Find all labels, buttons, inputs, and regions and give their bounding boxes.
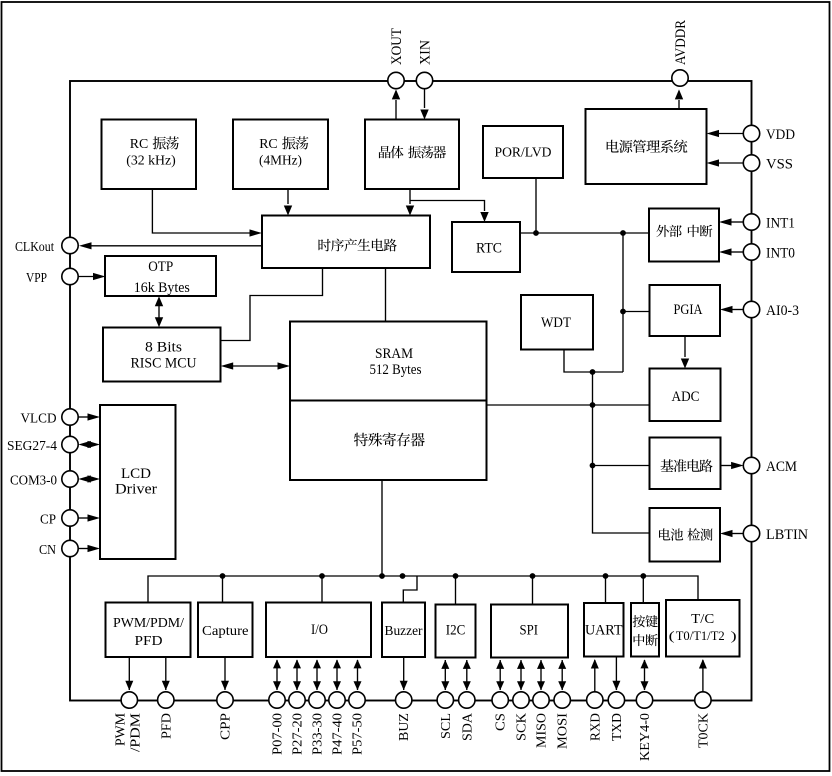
svg-text:WDT: WDT	[541, 315, 571, 331]
svg-text:Buzzer: Buzzer	[385, 624, 423, 639]
svg-text:SRAM: SRAM	[375, 346, 413, 362]
svg-text:KEY4-0: KEY4-0	[637, 713, 652, 761]
svg-text:Capture: Capture	[202, 624, 249, 639]
svg-text:MISO: MISO	[534, 713, 549, 748]
svg-text:(32 kHz): (32 kHz)	[126, 153, 176, 168]
svg-text:P57-50: P57-50	[350, 713, 365, 755]
svg-text:T0CK: T0CK	[695, 713, 710, 748]
svg-text:T0/T1/T2: T0/T1/T2	[676, 628, 725, 643]
svg-text:I2C: I2C	[446, 622, 466, 638]
svg-text:SCL: SCL	[438, 713, 453, 739]
svg-text:PGIA: PGIA	[674, 302, 703, 318]
svg-text:TXD: TXD	[609, 713, 624, 741]
svg-text:SDA: SDA	[459, 713, 474, 741]
svg-text:ACM: ACM	[766, 459, 797, 475]
svg-text:INT0: INT0	[766, 246, 795, 262]
svg-text:AI0-3: AI0-3	[766, 303, 799, 319]
svg-text:CP: CP	[40, 512, 56, 527]
svg-text:MOSI: MOSI	[555, 712, 570, 749]
svg-text:(4MHz): (4MHz)	[259, 153, 302, 168]
svg-text:VDD: VDD	[766, 127, 795, 143]
svg-text:(: (	[669, 628, 675, 643]
svg-text:P33-30: P33-30	[310, 713, 325, 755]
svg-text:/PDM: /PDM	[127, 713, 142, 752]
svg-text:AVDDR: AVDDR	[673, 20, 689, 65]
svg-text:SEG27-4: SEG27-4	[7, 439, 57, 454]
svg-text:P47-40: P47-40	[330, 713, 345, 755]
svg-text:LBTIN: LBTIN	[766, 527, 809, 543]
svg-text:P07-00: P07-00	[270, 713, 285, 755]
svg-text:LCD: LCD	[121, 466, 151, 482]
svg-text:T/C: T/C	[691, 612, 714, 627]
svg-text:SCK: SCK	[514, 713, 529, 741]
svg-text:CN: CN	[39, 543, 56, 558]
svg-text:VLCD: VLCD	[21, 411, 57, 426]
svg-text:INT1: INT1	[766, 216, 795, 232]
svg-text:PWM/PDM/: PWM/PDM/	[113, 616, 184, 631]
svg-text:RC: RC	[130, 137, 149, 152]
svg-text:8 Bits: 8 Bits	[145, 339, 182, 355]
svg-text:OTP: OTP	[148, 259, 173, 275]
svg-text:ADC: ADC	[672, 389, 700, 405]
svg-text:512 Bytes: 512 Bytes	[370, 362, 422, 378]
svg-text:VSS: VSS	[766, 157, 793, 173]
svg-text:XOUT: XOUT	[389, 28, 405, 65]
svg-text:PWM: PWM	[112, 713, 127, 746]
svg-text:UART: UART	[585, 622, 623, 638]
svg-text:I/O: I/O	[311, 622, 328, 638]
svg-text:XIN: XIN	[417, 39, 433, 65]
svg-text:CPP: CPP	[218, 713, 233, 740]
svg-text:Driver: Driver	[115, 482, 157, 498]
svg-text:PFD: PFD	[135, 634, 163, 649]
svg-text:): )	[731, 628, 737, 643]
svg-text:SPI: SPI	[520, 622, 539, 638]
svg-text:P27-20: P27-20	[290, 713, 305, 755]
svg-text:COM3-0: COM3-0	[10, 473, 57, 488]
svg-text:BUZ: BUZ	[396, 713, 411, 741]
svg-text:PFD: PFD	[158, 713, 173, 739]
svg-text:RISC MCU: RISC MCU	[131, 356, 197, 372]
svg-text:RXD: RXD	[587, 713, 602, 741]
svg-text:RTC: RTC	[476, 240, 502, 256]
svg-text:POR/LVD: POR/LVD	[495, 146, 552, 161]
svg-text:CS: CS	[493, 713, 508, 731]
svg-text:RC: RC	[259, 137, 278, 152]
svg-text:CLKout: CLKout	[15, 240, 54, 255]
svg-text:16k Bytes: 16k Bytes	[134, 280, 190, 296]
svg-text:VPP: VPP	[26, 271, 47, 286]
